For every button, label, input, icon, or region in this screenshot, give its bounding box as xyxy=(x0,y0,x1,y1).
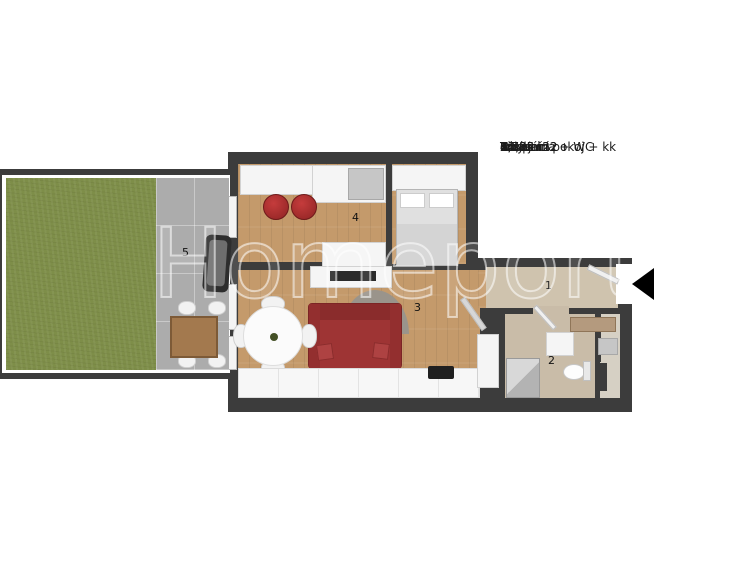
tv xyxy=(330,271,376,281)
duct-wall xyxy=(597,363,607,391)
bed-blanket xyxy=(397,224,457,265)
lounge-chair-cushion xyxy=(206,239,227,286)
cooktop xyxy=(428,366,454,379)
room-label-room: 4 xyxy=(352,212,359,223)
sofa-armrest xyxy=(390,304,401,368)
room-label-living: 3 xyxy=(414,302,421,313)
dining-table xyxy=(243,306,303,366)
room-label-hallway: 1 xyxy=(545,280,552,291)
entrance-door-gap xyxy=(616,264,632,304)
armchair xyxy=(263,194,289,220)
lounge-chair xyxy=(202,234,232,293)
vanity-top xyxy=(570,317,616,332)
pillow xyxy=(400,193,425,208)
niche-shelf xyxy=(392,165,466,191)
room-label-terrace: 5 xyxy=(182,247,189,258)
washing-machine xyxy=(598,338,618,355)
legend-room-name: Terasa xyxy=(500,140,539,156)
room-label-bathroom: 2 xyxy=(548,355,555,366)
outdoor-table xyxy=(170,316,218,358)
throw-pillow xyxy=(316,343,334,361)
floor-plan: 1 2 3 4 5 Homeport 1 Předsíň 3,39 m2 2 K… xyxy=(0,0,749,562)
wardrobe xyxy=(240,165,314,195)
pillow xyxy=(429,193,454,208)
toilet-bowl xyxy=(563,364,585,380)
shower xyxy=(506,358,540,398)
dining-chair xyxy=(301,324,317,348)
outdoor-chair xyxy=(178,301,196,315)
toilet-tank xyxy=(583,361,591,381)
entrance-arrow-icon xyxy=(632,268,654,300)
sofa-backrest xyxy=(309,304,401,320)
single-bed-blanket xyxy=(348,168,384,200)
kitchen-tall-cabinet xyxy=(477,334,499,388)
table-plant xyxy=(270,333,278,341)
outdoor-chair xyxy=(208,301,226,315)
sofa xyxy=(308,303,402,369)
terrace-grass xyxy=(6,178,156,370)
armchair xyxy=(291,194,317,220)
sink-cabinet xyxy=(546,332,574,356)
throw-pillow xyxy=(372,342,390,360)
desk xyxy=(322,242,386,267)
double-bed xyxy=(396,189,458,266)
